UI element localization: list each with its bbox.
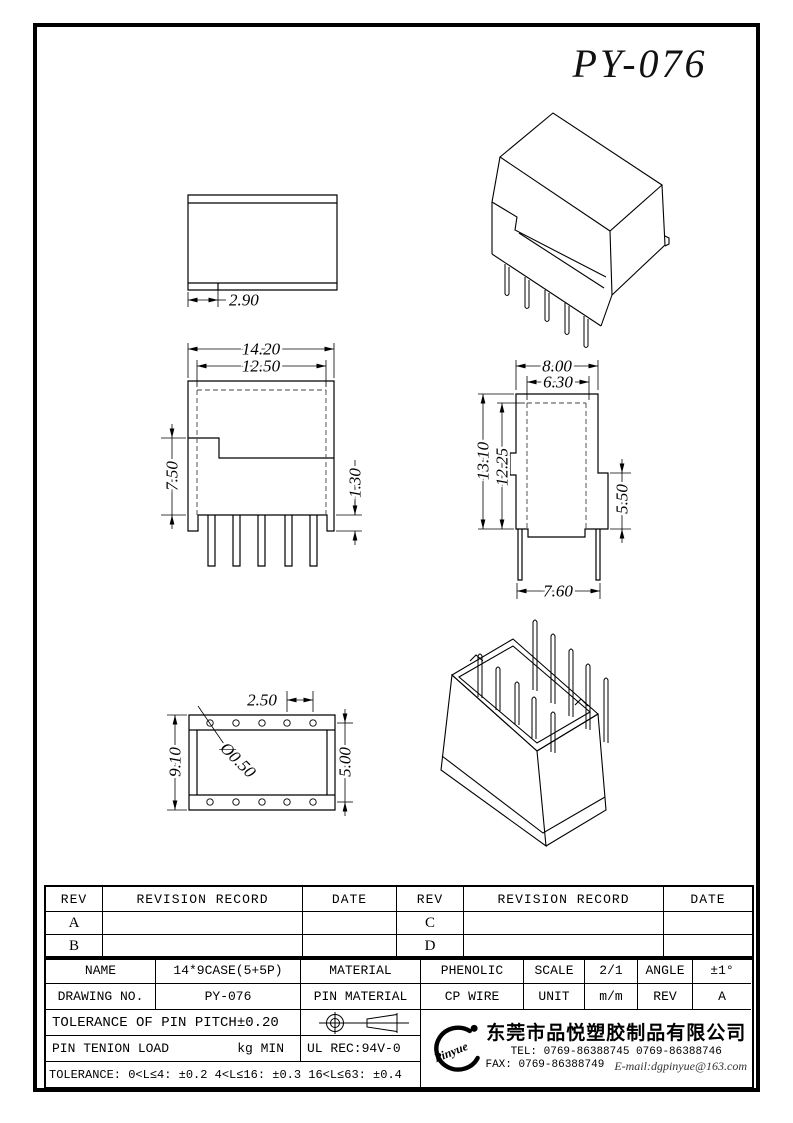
isometric-view-top [492, 113, 669, 348]
isometric-view-bottom [441, 620, 608, 846]
dim-side-total-height: 13.10 [474, 441, 493, 480]
front-view: 14.20 12.50 7.50 1.30 [161, 340, 365, 567]
pin-material-value: CP WIRE [421, 984, 524, 1010]
dim-top-step-width: 2.90 [229, 291, 259, 310]
scale-label: SCALE [524, 958, 585, 984]
rev-row-a: A [46, 912, 103, 935]
projection-symbol-icon [305, 1011, 417, 1035]
dim-front-inner-width: 12.50 [242, 357, 281, 376]
rev-record-a [103, 912, 303, 935]
company-email: E-mail:dgpinyue@163.com [614, 1059, 747, 1074]
dim-bottom-pitch: 2.50 [247, 691, 277, 710]
dim-side-inner-height: 12.25 [493, 448, 512, 486]
rev-record-c [464, 912, 664, 935]
unit-value: m/m [585, 984, 638, 1010]
tolerance-note: TOLERANCE: 0<L≤4: ±0.2 4<L≤16: ±0.3 16<L… [46, 1062, 421, 1087]
pinyue-logo: Pinyue [421, 1016, 485, 1086]
dim-side-pin-span: 7.60 [543, 582, 573, 601]
dim-bottom-hole-diameter: Ø0.50 [216, 738, 260, 782]
pin-tension-unit: kg MIN [237, 1041, 284, 1056]
title-block: NAME 14*9CASE(5+5P) MATERIAL PHENOLIC SC… [44, 956, 754, 1089]
rev-value: A [693, 984, 751, 1010]
rev-date-a [303, 912, 397, 935]
revision-table: REV REVISION RECORD DATE REV REVISION RE… [44, 885, 754, 960]
material-label: MATERIAL [301, 958, 421, 984]
angle-value: ±1° [693, 958, 751, 984]
rev-header-date-1: DATE [303, 887, 397, 912]
ul-rec: UL REC:94V-0 [301, 1036, 421, 1062]
drawing-no-label: DRAWING NO. [46, 984, 156, 1010]
drawing-sheet: PY-076 2.90 [0, 0, 793, 1123]
rev-date-c [664, 912, 752, 935]
scale-value: 2/1 [585, 958, 638, 984]
rev-label: REV [638, 984, 693, 1010]
name-value: 14*9CASE(5+5P) [156, 958, 301, 984]
rev-date-d [664, 935, 752, 958]
rev-header-record-1: REVISION RECORD [103, 887, 303, 912]
bottom-view-holes [207, 720, 316, 805]
side-view: 8.00 6.30 13.10 12.25 5.50 7.60 [474, 357, 632, 601]
top-view: 2.90 [188, 195, 337, 310]
unit-label: UNIT [524, 984, 585, 1010]
name-label: NAME [46, 958, 156, 984]
dim-side-right-height: 5.50 [613, 484, 632, 514]
front-view-pins [208, 515, 317, 566]
rev-date-b [303, 935, 397, 958]
projection-symbol-cell [301, 1010, 421, 1036]
company-fax-row: FAX: 0769-86388749 E-mail:dgpinyue@163.c… [485, 1059, 747, 1074]
rev-row-d: D [397, 935, 464, 958]
dim-front-left-height: 7.50 [163, 461, 182, 491]
company-name: 东莞市品悦塑胶制品有限公司 [485, 1023, 747, 1045]
company-block: Pinyue 东莞市品悦塑胶制品有限公司 TEL: 0769-86388745 … [421, 1010, 751, 1087]
company-text: 东莞市品悦塑胶制品有限公司 TEL: 0769-86388745 0769-86… [485, 1023, 751, 1075]
dim-bottom-height: 9.10 [166, 747, 185, 777]
rev-row-b: B [46, 935, 103, 958]
rev-header-date-2: DATE [664, 887, 752, 912]
rev-header-rev-2: REV [397, 887, 464, 912]
company-fax: FAX: 0769-86388749 [485, 1059, 604, 1074]
rev-header-rev-1: REV [46, 887, 103, 912]
pin-pitch-tolerance: TOLERANCE OF PIN PITCH±0.20 [46, 1010, 301, 1036]
pin-tension-label: PIN TENION LOAD [52, 1041, 169, 1056]
rev-record-b [103, 935, 303, 958]
dim-bottom-row-span: 5.00 [336, 747, 355, 777]
rev-header-record-2: REVISION RECORD [464, 887, 664, 912]
pin-tension-cell: PIN TENION LOAD kg MIN [46, 1036, 301, 1062]
angle-label: ANGLE [638, 958, 693, 984]
pin-material-label: PIN MATERIAL [301, 984, 421, 1010]
dim-front-lip-height: 1.30 [346, 468, 365, 498]
rev-record-d [464, 935, 664, 958]
dim-side-inner-width: 6.30 [543, 373, 573, 392]
bottom-view: 2.50 Ø0.50 9.10 5.00 [166, 691, 355, 817]
material-value: PHENOLIC [421, 958, 524, 984]
rev-row-c: C [397, 912, 464, 935]
drawing-no-value: PY-076 [156, 984, 301, 1010]
company-tel: TEL: 0769-86388745 0769-86388746 [485, 1046, 747, 1058]
